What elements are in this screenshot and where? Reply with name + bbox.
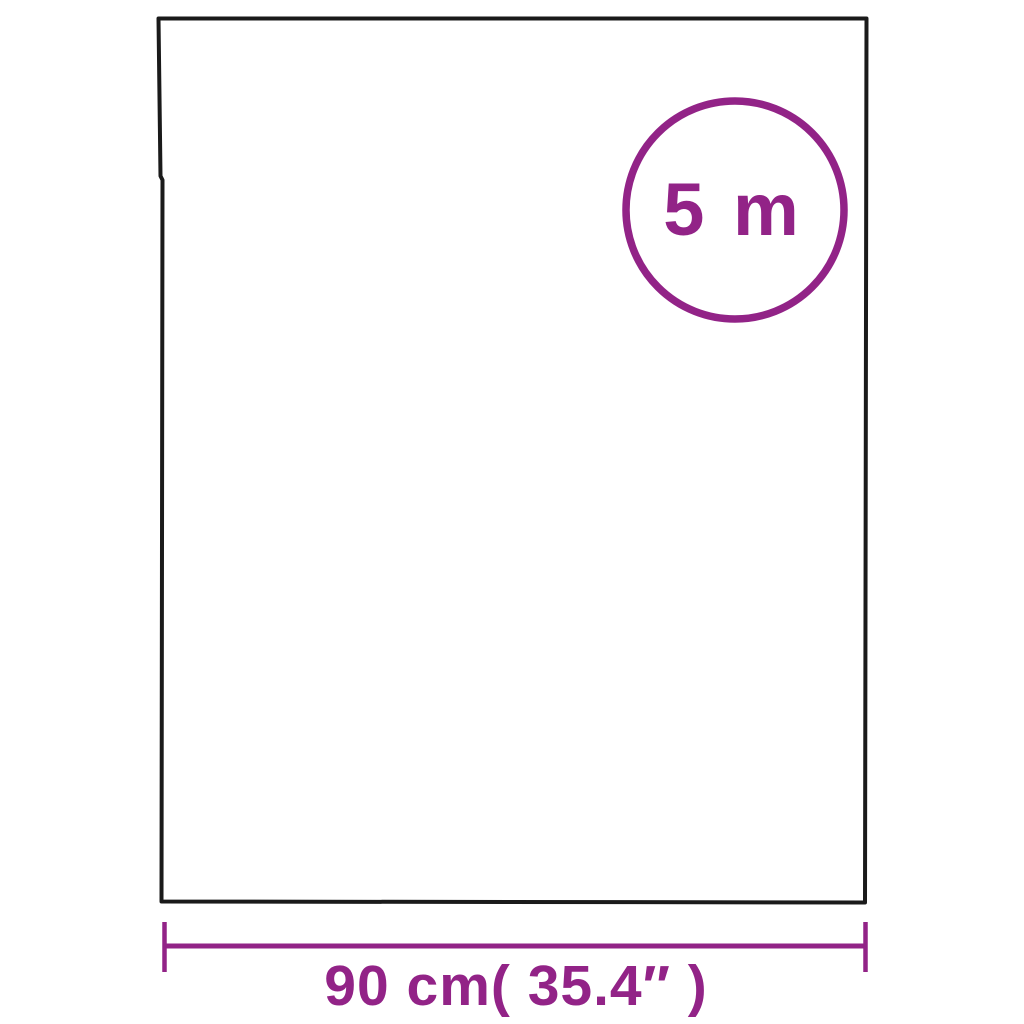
width-dimension-label: 90 cm( 35.4″ ) <box>324 954 708 1018</box>
product-dimension-figure: 5 m 90 cm( 35.4″ ) <box>0 0 1024 1024</box>
figure-canvas: 5 m 90 cm( 35.4″ ) <box>0 0 1024 1024</box>
figure-background <box>0 0 1024 1024</box>
length-badge-label: 5 m <box>663 168 803 251</box>
